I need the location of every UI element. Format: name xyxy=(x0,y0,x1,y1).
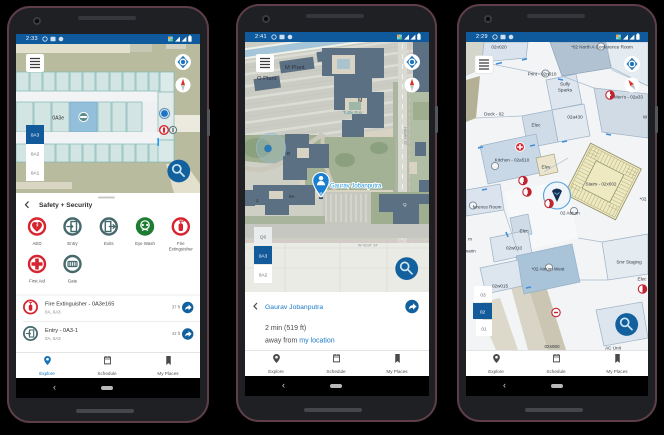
svg-text:0A2: 0A2 xyxy=(31,152,40,158)
svg-text:02w010: 02w010 xyxy=(506,246,523,251)
svg-text:0A3e: 0A3e xyxy=(52,116,64,122)
svg-text:Fire Extinguisher - 0A3e165: Fire Extinguisher - 0A3e165 xyxy=(45,302,114,308)
svg-text:Elec: Elec xyxy=(638,277,648,282)
svg-text:HENRY ST: HENRY ST xyxy=(403,127,407,146)
svg-text:First Aid: First Aid xyxy=(29,279,45,284)
svg-text:Entry: Entry xyxy=(67,241,78,246)
svg-text:Q: Q xyxy=(403,202,407,207)
svg-text:O Plant: O Plant xyxy=(257,76,277,82)
svg-text:02n020: 02n020 xyxy=(491,45,507,50)
svg-text:W 41ST ST: W 41ST ST xyxy=(358,243,379,248)
svg-text:02: 02 xyxy=(480,310,486,316)
svg-text:0A, 0A3: 0A, 0A3 xyxy=(45,310,61,315)
svg-text:Kitchen - 02a510: Kitchen - 02a510 xyxy=(495,158,530,163)
svg-text:AED: AED xyxy=(32,241,41,246)
svg-text:Gaurav Jobanputra: Gaurav Jobanputra xyxy=(265,304,323,311)
svg-text:Men's - 02a33: Men's - 02a33 xyxy=(614,95,643,100)
svg-text:Exits: Exits xyxy=(104,241,114,246)
svg-text:J: J xyxy=(256,198,258,203)
svg-text:03: 03 xyxy=(480,293,486,299)
svg-text:Sully: Sully xyxy=(560,82,571,87)
svg-text:W: W xyxy=(643,115,648,120)
svg-text:Gate: Gate xyxy=(68,279,78,284)
svg-text:0A3: 0A3 xyxy=(259,254,268,260)
svg-text:Elev: Elev xyxy=(542,165,552,170)
svg-text:away from my location: away from my location xyxy=(265,338,335,345)
svg-text:M Plant: M Plant xyxy=(285,65,305,71)
svg-text:*02: *02 xyxy=(640,197,647,202)
svg-text:Entry - 0A3-1: Entry - 0A3-1 xyxy=(45,328,78,334)
svg-text:2 min (519 ft): 2 min (519 ft) xyxy=(265,325,306,332)
svg-text:0A1: 0A1 xyxy=(31,171,40,177)
svg-text:02 Atrium: 02 Atrium xyxy=(560,211,580,216)
svg-text:Q6: Q6 xyxy=(260,235,267,241)
svg-text:*02 North A Conference Room: *02 North A Conference Room xyxy=(571,45,633,50)
svg-text:02w015: 02w015 xyxy=(492,284,509,289)
svg-text:43 ft: 43 ft xyxy=(172,331,181,336)
svg-text:Gaurav Jobanputra: Gaurav Jobanputra xyxy=(330,184,382,190)
svg-text:Print - 02n010: Print - 02n010 xyxy=(528,72,557,77)
svg-text:Extinguisher: Extinguisher xyxy=(169,247,194,252)
svg-text:Fire: Fire xyxy=(177,241,185,246)
svg-text:ference Room: ference Room xyxy=(473,205,502,210)
svg-text:Stairs - 02x002: Stairs - 02x002 xyxy=(586,182,617,187)
svg-text:02a430: 02a430 xyxy=(567,115,583,120)
svg-text:0A2: 0A2 xyxy=(259,273,268,279)
svg-text:01: 01 xyxy=(481,327,487,333)
svg-text:0A, 0A3: 0A, 0A3 xyxy=(45,336,61,341)
svg-text:Elec: Elec xyxy=(532,123,542,128)
svg-text:*02 Atrium West: *02 Atrium West xyxy=(532,267,566,272)
svg-text:Eye Wash: Eye Wash xyxy=(135,241,155,246)
svg-text:Elec: Elec xyxy=(520,229,530,234)
svg-text:0A: 0A xyxy=(289,194,296,199)
svg-text:Tuttle Pon: Tuttle Pon xyxy=(343,110,363,115)
svg-text:Srvr Staging: Srvr Staging xyxy=(616,260,642,265)
svg-text:marin: marin xyxy=(466,249,476,254)
svg-text:02s080: 02s080 xyxy=(544,344,560,349)
svg-text:M: M xyxy=(358,98,362,104)
svg-text:Deck - 02: Deck - 02 xyxy=(484,112,504,117)
svg-text:Sparks: Sparks xyxy=(558,88,573,93)
svg-text:0A3: 0A3 xyxy=(31,133,40,139)
svg-text:37 ft: 37 ft xyxy=(172,305,181,310)
svg-text:Safety + Security: Safety + Security xyxy=(39,202,93,209)
svg-text:m: m xyxy=(468,237,472,242)
